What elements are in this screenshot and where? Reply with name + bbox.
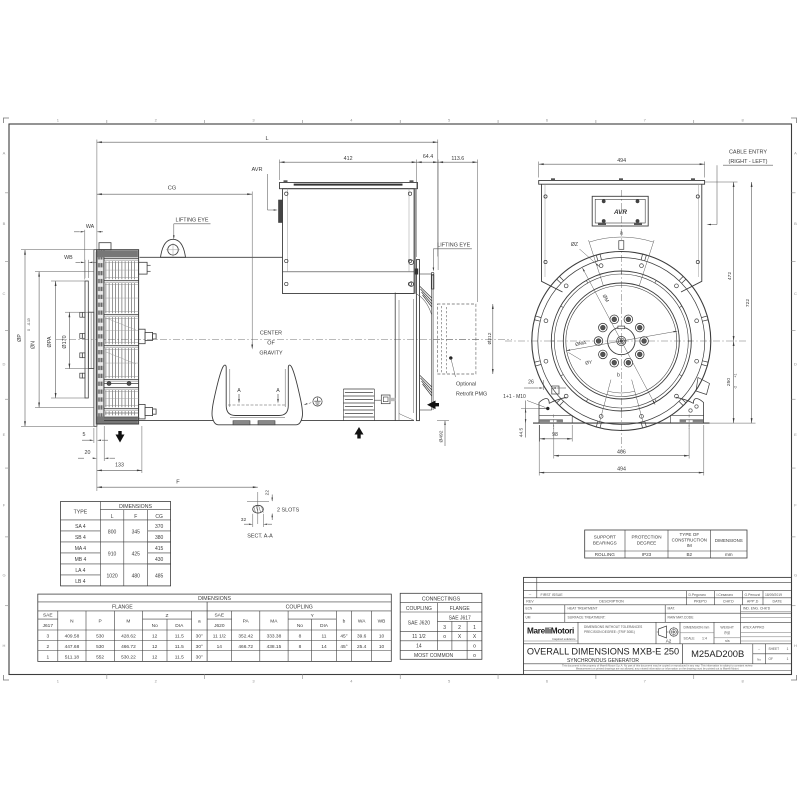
- svg-text:B: B: [3, 221, 6, 226]
- svg-text:Retrofit PMG: Retrofit PMG: [456, 392, 487, 398]
- svg-text:DIMENSIONS WITHOUT TOLERANCES: DIMENSIONS WITHOUT TOLERANCES: [584, 625, 642, 629]
- svg-text:22: 22: [264, 490, 270, 496]
- svg-text:Inspired solutions: Inspired solutions: [552, 637, 576, 641]
- svg-text:N: N: [70, 619, 74, 625]
- svg-text:530: 530: [96, 634, 104, 640]
- svg-text:REV: REV: [526, 600, 534, 604]
- svg-text:H: H: [3, 643, 6, 648]
- svg-text:2: 2: [458, 625, 461, 631]
- svg-text:1: 1: [787, 657, 789, 661]
- svg-text:G: G: [2, 573, 5, 578]
- svg-text:1:4: 1:4: [702, 637, 707, 641]
- svg-text:SCALE: SCALE: [684, 637, 696, 641]
- svg-text:DIMENSIONS: DIMENSIONS: [198, 596, 231, 602]
- svg-text:SYNCHRONOUS GENERATOR: SYNCHRONOUS GENERATOR: [567, 658, 639, 664]
- svg-text:11 1/2: 11 1/2: [213, 634, 226, 640]
- svg-text:-2: -2: [734, 386, 738, 389]
- svg-text:98: 98: [552, 432, 558, 438]
- svg-text:--: --: [758, 648, 760, 652]
- svg-text:SB 4: SB 4: [75, 535, 86, 541]
- svg-text:409.58: 409.58: [65, 634, 80, 640]
- svg-text:D: D: [3, 362, 6, 367]
- svg-text:WA: WA: [358, 619, 366, 625]
- svg-text:CHK'D: CHK'D: [723, 600, 734, 604]
- svg-text:DIMENSION mm: DIMENSION mm: [684, 626, 710, 630]
- svg-text:25.4: 25.4: [357, 644, 367, 650]
- svg-text:12: 12: [152, 644, 158, 650]
- svg-text:A2: A2: [666, 639, 672, 644]
- svg-text:COUPLING: COUPLING: [286, 605, 313, 611]
- svg-text:800: 800: [108, 529, 117, 535]
- svg-text:1: 1: [473, 625, 476, 631]
- svg-text:44.5: 44.5: [518, 427, 524, 437]
- svg-text:380: 380: [155, 535, 164, 541]
- svg-text:30°: 30°: [196, 644, 203, 650]
- svg-text:8: 8: [299, 634, 302, 640]
- svg-text:352.42: 352.42: [238, 634, 253, 640]
- svg-text:D.Pegoraro: D.Pegoraro: [689, 593, 706, 597]
- svg-text:TYPE: TYPE: [74, 510, 88, 516]
- svg-text:a: a: [620, 231, 623, 237]
- svg-text:438.15: 438.15: [267, 644, 282, 650]
- svg-text:Ø492: Ø492: [438, 430, 444, 442]
- svg-text:BEARINGS: BEARINGS: [593, 541, 617, 546]
- svg-text:530: 530: [96, 644, 104, 650]
- svg-text:E: E: [3, 432, 6, 437]
- svg-text:18/09/2019: 18/09/2019: [765, 593, 782, 597]
- svg-text:MAT.: MAT.: [668, 607, 676, 611]
- svg-text:DIA: DIA: [175, 623, 184, 629]
- svg-text:FLANGE: FLANGE: [112, 605, 133, 611]
- svg-text:3: 3: [443, 625, 446, 631]
- svg-text:A: A: [276, 388, 280, 394]
- svg-text:20: 20: [85, 450, 91, 456]
- svg-text:113.6: 113.6: [451, 156, 464, 162]
- svg-text:FIRST ISSUE: FIRST ISSUE: [541, 593, 564, 597]
- svg-text:o: o: [473, 644, 476, 650]
- svg-text:511.18: 511.18: [65, 654, 80, 660]
- svg-text:11.5: 11.5: [175, 644, 184, 650]
- svg-text:466.72: 466.72: [238, 644, 253, 650]
- svg-text:SUPPORT: SUPPORT: [594, 535, 616, 540]
- svg-text:LB 4: LB 4: [75, 579, 86, 585]
- svg-text:412: 412: [344, 156, 353, 162]
- svg-text:WB: WB: [64, 255, 73, 261]
- svg-text:LIFTING EYE: LIFTING EYE: [437, 242, 470, 248]
- svg-text:No: No: [152, 623, 158, 629]
- svg-text:ØN: ØN: [30, 341, 36, 349]
- svg-text:10: 10: [379, 644, 385, 650]
- svg-text:2 SLOTS: 2 SLOTS: [277, 508, 300, 514]
- svg-text:Optional: Optional: [456, 382, 476, 388]
- svg-text:345: 345: [132, 529, 141, 535]
- svg-text:FLANGE: FLANGE: [450, 606, 471, 612]
- svg-text:PA: PA: [243, 619, 250, 625]
- svg-text:UM: UM: [526, 616, 531, 620]
- svg-text:530.22: 530.22: [121, 654, 136, 660]
- svg-text:C: C: [794, 291, 797, 296]
- svg-text:ATEX APPRO: ATEX APPRO: [743, 626, 765, 630]
- svg-text:552: 552: [96, 654, 104, 660]
- svg-text:722: 722: [745, 299, 751, 307]
- svg-text:M25AD200B: M25AD200B: [691, 648, 744, 659]
- svg-text:428.62: 428.62: [121, 634, 136, 640]
- svg-text:485: 485: [155, 573, 164, 579]
- svg-text:OF: OF: [267, 341, 275, 347]
- svg-text:IM: IM: [687, 543, 692, 548]
- svg-text:SHEET: SHEET: [769, 647, 780, 651]
- svg-text:o: o: [473, 653, 476, 659]
- svg-text:A: A: [237, 388, 241, 394]
- svg-text:LA 4: LA 4: [75, 568, 85, 574]
- svg-text:ØZ: ØZ: [571, 242, 578, 248]
- svg-text:Ø212: Ø212: [487, 332, 493, 344]
- svg-text:5: 5: [83, 432, 86, 438]
- svg-text:SA 4: SA 4: [75, 524, 86, 530]
- svg-text:B: B: [794, 221, 797, 226]
- svg-text:480: 480: [132, 573, 141, 579]
- svg-text:n/a: n/a: [725, 639, 730, 643]
- svg-text:No: No: [297, 623, 303, 629]
- svg-text:32: 32: [241, 517, 247, 523]
- svg-text:B2: B2: [686, 552, 692, 557]
- svg-text:COUPLING: COUPLING: [406, 606, 432, 612]
- svg-text:D: D: [794, 362, 797, 367]
- svg-text:494: 494: [617, 467, 626, 473]
- svg-text:SAE: SAE: [214, 613, 224, 619]
- svg-text:L: L: [111, 514, 114, 520]
- svg-text:11.5: 11.5: [175, 654, 184, 660]
- svg-text:370: 370: [155, 524, 164, 530]
- svg-text:1: 1: [46, 654, 49, 660]
- svg-text:MA: MA: [270, 619, 278, 625]
- svg-text:3: 3: [46, 634, 49, 640]
- svg-text:CABLE ENTRY: CABLE ENTRY: [729, 150, 767, 156]
- svg-text:14: 14: [217, 644, 223, 650]
- svg-text:F: F: [134, 514, 137, 520]
- svg-text:CG: CG: [168, 186, 176, 192]
- svg-text:425: 425: [132, 551, 141, 557]
- svg-text:SECT. A-A: SECT. A-A: [247, 534, 273, 540]
- svg-text:406: 406: [617, 450, 626, 456]
- svg-text:12: 12: [152, 654, 158, 660]
- svg-text:(RIGHT - LEFT): (RIGHT - LEFT): [728, 159, 767, 165]
- svg-text:DATE: DATE: [773, 600, 783, 604]
- svg-text:HEAT TREATMENT: HEAT TREATMENT: [568, 607, 598, 611]
- svg-text:A: A: [794, 151, 797, 156]
- svg-text:MarelliMotori: MarelliMotori: [527, 627, 574, 636]
- svg-text:AVR: AVR: [613, 209, 627, 216]
- svg-text:415: 415: [155, 546, 164, 552]
- svg-text:DESCRIPTION: DESCRIPTION: [599, 600, 624, 604]
- svg-text:12: 12: [152, 634, 158, 640]
- svg-text:APP'.D: APP'.D: [747, 600, 759, 604]
- svg-text:DEGREE: DEGREE: [637, 541, 656, 546]
- svg-text:A: A: [3, 151, 6, 156]
- svg-text:L: L: [265, 136, 268, 142]
- svg-text:11.5: 11.5: [175, 634, 184, 640]
- svg-text:H: H: [794, 643, 797, 648]
- svg-text:No: No: [757, 658, 761, 662]
- svg-text:MB 4: MB 4: [75, 557, 87, 563]
- svg-text:IP23: IP23: [642, 552, 652, 557]
- svg-text:M: M: [126, 619, 130, 625]
- svg-text:IND. ENG. CHK'D: IND. ENG. CHK'D: [743, 607, 771, 611]
- svg-text:MOST COMMON: MOST COMMON: [414, 653, 453, 659]
- svg-text:CONNECTINGS: CONNECTINGS: [422, 597, 461, 603]
- svg-text:J620: J620: [214, 623, 225, 629]
- svg-text:ØPA: ØPA: [47, 336, 53, 347]
- svg-text:DIMENSIONS: DIMENSIONS: [119, 504, 152, 510]
- svg-text:F: F: [176, 480, 180, 486]
- svg-text:-0.13: -0.13: [27, 318, 31, 325]
- svg-text:64.4: 64.4: [423, 154, 433, 160]
- svg-text:G.Penuzzi: G.Penuzzi: [745, 593, 761, 597]
- svg-text:LIFTING EYE: LIFTING EYE: [176, 217, 209, 223]
- svg-text:a: a: [198, 620, 201, 625]
- svg-text:ECN: ECN: [526, 607, 533, 611]
- svg-text:14: 14: [416, 644, 422, 650]
- svg-text:b: b: [343, 619, 346, 625]
- svg-text:30°: 30°: [196, 654, 203, 660]
- svg-text:AVR: AVR: [251, 167, 262, 173]
- svg-text:SURFACE TREATMENT:: SURFACE TREATMENT:: [568, 616, 606, 620]
- svg-text:PROTECTION: PROTECTION: [631, 535, 661, 540]
- svg-text:CG: CG: [155, 514, 163, 520]
- svg-text:mm: mm: [725, 552, 733, 557]
- svg-text:I.Cesanaro: I.Cesanaro: [717, 593, 734, 597]
- svg-text:430: 430: [155, 557, 164, 563]
- svg-text:DIA: DIA: [320, 623, 329, 629]
- svg-text:ROLLING: ROLLING: [595, 552, 616, 557]
- svg-text:OF: OF: [769, 657, 773, 661]
- svg-text:OVERALL DIMENSIONS MXB-E 250: OVERALL DIMENSIONS MXB-E 250: [527, 647, 679, 657]
- svg-text:1: 1: [787, 647, 789, 651]
- svg-text:SAE: SAE: [43, 613, 53, 619]
- svg-text:(kg): (kg): [724, 631, 730, 635]
- svg-text:+1: +1: [734, 373, 738, 377]
- svg-text:MA 4: MA 4: [75, 546, 87, 552]
- svg-text:494: 494: [617, 158, 626, 164]
- svg-text:30°: 30°: [196, 634, 203, 640]
- svg-text:WEIGHT: WEIGHT: [720, 626, 734, 630]
- svg-text:10: 10: [379, 634, 385, 640]
- svg-text:ØP: ØP: [17, 334, 23, 342]
- svg-text:Z: Z: [166, 613, 169, 619]
- svg-text:P: P: [98, 619, 101, 625]
- svg-text:CONSTRUCTION: CONSTRUCTION: [672, 538, 707, 543]
- svg-text:45°: 45°: [340, 644, 347, 650]
- svg-text:GRAVITY: GRAVITY: [259, 351, 283, 357]
- svg-text:G: G: [794, 573, 797, 578]
- svg-text:11: 11: [322, 634, 327, 640]
- svg-text:DIMENSIONS: DIMENSIONS: [715, 538, 743, 543]
- svg-text:TYPE OF: TYPE OF: [679, 532, 699, 537]
- svg-text:1+1 - M10: 1+1 - M10: [503, 394, 526, 400]
- svg-text:1020: 1020: [107, 573, 118, 579]
- svg-text:Ø170: Ø170: [62, 335, 68, 348]
- svg-text:910: 910: [108, 551, 117, 557]
- svg-text:133: 133: [115, 463, 124, 469]
- svg-text:o: o: [443, 634, 446, 640]
- svg-text:333.38: 333.38: [267, 634, 282, 640]
- svg-text:11 1/2: 11 1/2: [412, 634, 426, 640]
- svg-text:14: 14: [321, 644, 327, 650]
- svg-text:466.72: 466.72: [121, 644, 136, 650]
- svg-text:SAE J617: SAE J617: [449, 615, 471, 621]
- svg-text:WA: WA: [86, 224, 95, 230]
- svg-text:CENTER: CENTER: [260, 331, 282, 337]
- svg-text:J617: J617: [43, 623, 54, 629]
- svg-text:472: 472: [727, 272, 733, 280]
- svg-text:WB: WB: [378, 619, 386, 625]
- svg-text:2: 2: [46, 644, 49, 650]
- svg-text:447.68: 447.68: [65, 644, 80, 650]
- svg-text:SAE J620: SAE J620: [408, 621, 430, 627]
- svg-text:PRECISION DEGREE: (TRIF 3081): PRECISION DEGREE: (TRIF 3081): [584, 630, 635, 634]
- svg-text:250: 250: [726, 378, 732, 386]
- svg-text:b: b: [617, 373, 620, 379]
- svg-text:39.6: 39.6: [357, 634, 367, 640]
- svg-text:PREP'D: PREP'D: [694, 600, 707, 604]
- svg-text:C: C: [3, 291, 6, 296]
- svg-text:Measurement on printed drawing: Measurement on printed drawings are not …: [576, 667, 740, 671]
- svg-text:E: E: [794, 432, 797, 437]
- svg-text:RAW MAT.CODE: RAW MAT.CODE: [668, 616, 695, 620]
- svg-text:26: 26: [528, 379, 534, 385]
- svg-text:0: 0: [27, 329, 31, 331]
- svg-text:8: 8: [299, 644, 302, 650]
- svg-text:45°: 45°: [340, 634, 347, 640]
